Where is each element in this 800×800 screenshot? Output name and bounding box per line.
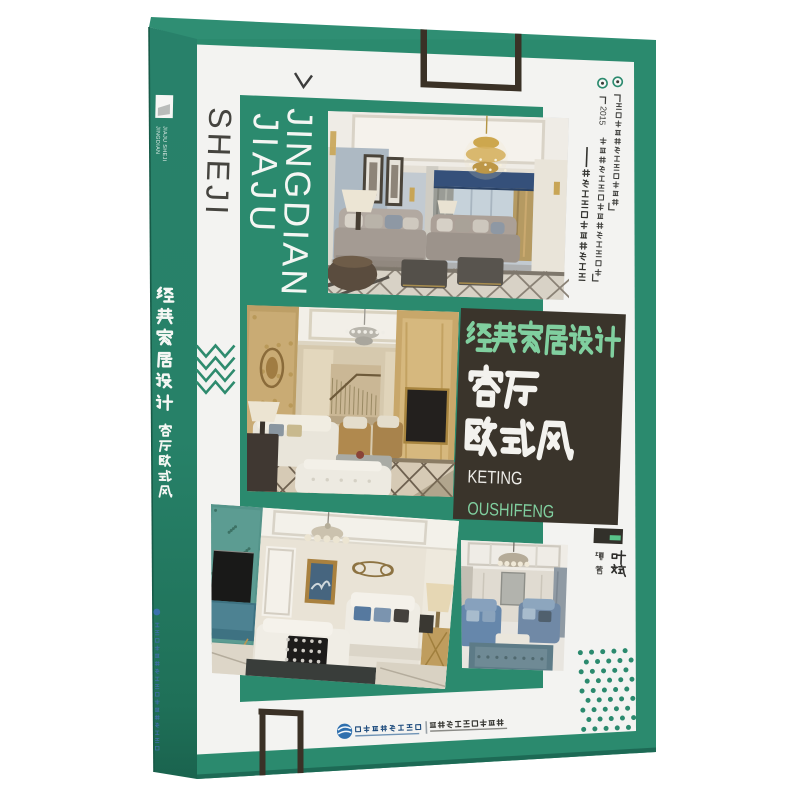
svg-text:OUSHIFENG: OUSHIFENG	[467, 498, 555, 521]
svg-text:JINGDIAN: JINGDIAN	[154, 126, 160, 154]
svg-text:JIAJU SHEJI: JIAJU SHEJI	[161, 126, 168, 162]
svg-text:KETING: KETING	[467, 466, 523, 488]
svg-text:2015: 2015	[597, 106, 608, 126]
svg-text:JIAJU: JIAJU	[242, 113, 287, 237]
svg-text:SHEJI: SHEJI	[199, 107, 239, 219]
